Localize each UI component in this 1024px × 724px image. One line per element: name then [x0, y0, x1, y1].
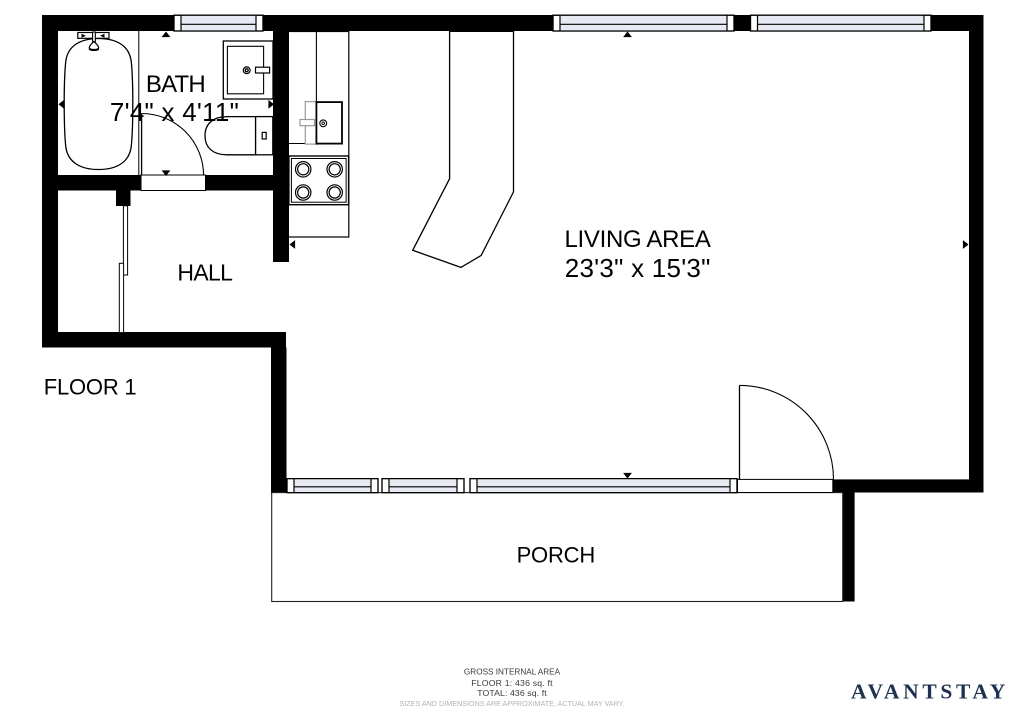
svg-text:SIZES AND DIMENSIONS ARE APPRO: SIZES AND DIMENSIONS ARE APPROXIMATE, AC… — [400, 699, 625, 708]
svg-text:TOTAL: 436 sq. ft: TOTAL: 436 sq. ft — [477, 688, 547, 698]
svg-text:FLOOR 1: 436 sq. ft: FLOOR 1: 436 sq. ft — [471, 678, 553, 688]
svg-text:LIVING AREA: LIVING AREA — [564, 226, 710, 253]
svg-text:7'4" x 4'11": 7'4" x 4'11" — [110, 97, 239, 127]
svg-text:AVANTSTAY: AVANTSTAY — [851, 680, 1009, 704]
svg-text:BATH: BATH — [146, 71, 205, 98]
svg-text:23'3" x 15'3": 23'3" x 15'3" — [565, 253, 711, 283]
svg-text:GROSS INTERNAL AREA: GROSS INTERNAL AREA — [464, 668, 561, 677]
svg-text:FLOOR 1: FLOOR 1 — [44, 374, 137, 399]
svg-text:PORCH: PORCH — [517, 543, 595, 568]
svg-text:HALL: HALL — [177, 260, 233, 286]
